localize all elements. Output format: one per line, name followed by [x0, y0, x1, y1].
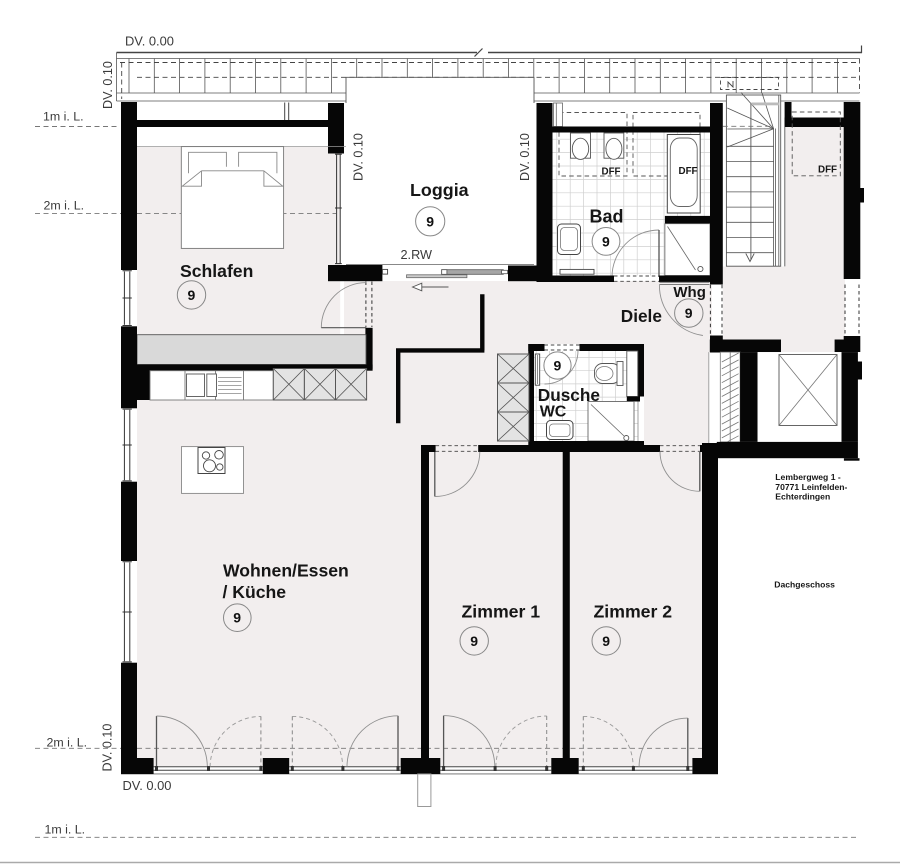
- svg-text:WC: WC: [540, 404, 567, 421]
- svg-text:2m i. L.: 2m i. L.: [44, 199, 85, 213]
- svg-text:Dachgeschoss: Dachgeschoss: [774, 580, 835, 590]
- svg-text:Lembergweg 1 -: Lembergweg 1 -: [775, 472, 841, 482]
- svg-text:9: 9: [470, 633, 478, 649]
- svg-text:2.RW: 2.RW: [401, 248, 433, 262]
- svg-text:Zimmer 1: Zimmer 1: [462, 601, 541, 621]
- svg-text:9: 9: [602, 633, 610, 649]
- svg-text:/ Küche: / Küche: [223, 582, 287, 602]
- svg-text:1m i. L.: 1m i. L.: [45, 823, 86, 837]
- svg-text:1m i. L.: 1m i. L.: [43, 110, 84, 124]
- svg-text:2m i. L.: 2m i. L.: [47, 736, 88, 750]
- svg-text:DV. 0.10: DV. 0.10: [518, 133, 532, 181]
- svg-text:Loggia: Loggia: [410, 180, 470, 200]
- svg-text:Echterdingen: Echterdingen: [775, 491, 830, 501]
- svg-text:DV. 0.00: DV. 0.00: [125, 34, 174, 49]
- svg-text:Diele: Diele: [621, 306, 662, 326]
- svg-text:9: 9: [233, 610, 241, 626]
- svg-text:9: 9: [426, 213, 434, 229]
- svg-text:70771 Leinfelden-: 70771 Leinfelden-: [775, 482, 847, 492]
- svg-text:DFF: DFF: [818, 164, 837, 175]
- svg-text:9: 9: [188, 287, 196, 303]
- svg-text:DV. 0.10: DV. 0.10: [101, 61, 115, 109]
- svg-text:Wohnen/Essen: Wohnen/Essen: [223, 560, 349, 580]
- svg-text:Schlafen: Schlafen: [180, 261, 253, 281]
- svg-text:Dusche: Dusche: [538, 385, 600, 405]
- svg-text:9: 9: [685, 305, 693, 321]
- svg-text:9: 9: [602, 233, 610, 249]
- svg-text:DV. 0.10: DV. 0.10: [352, 133, 366, 181]
- svg-text:DV. 0.10: DV. 0.10: [101, 724, 115, 772]
- svg-text:DFF: DFF: [679, 166, 698, 177]
- svg-text:DV. 0.00: DV. 0.00: [123, 778, 172, 793]
- svg-text:Zimmer 2: Zimmer 2: [594, 601, 673, 621]
- svg-text:9: 9: [554, 358, 562, 374]
- svg-text:DFF: DFF: [602, 167, 621, 178]
- svg-text:Bad: Bad: [590, 206, 624, 226]
